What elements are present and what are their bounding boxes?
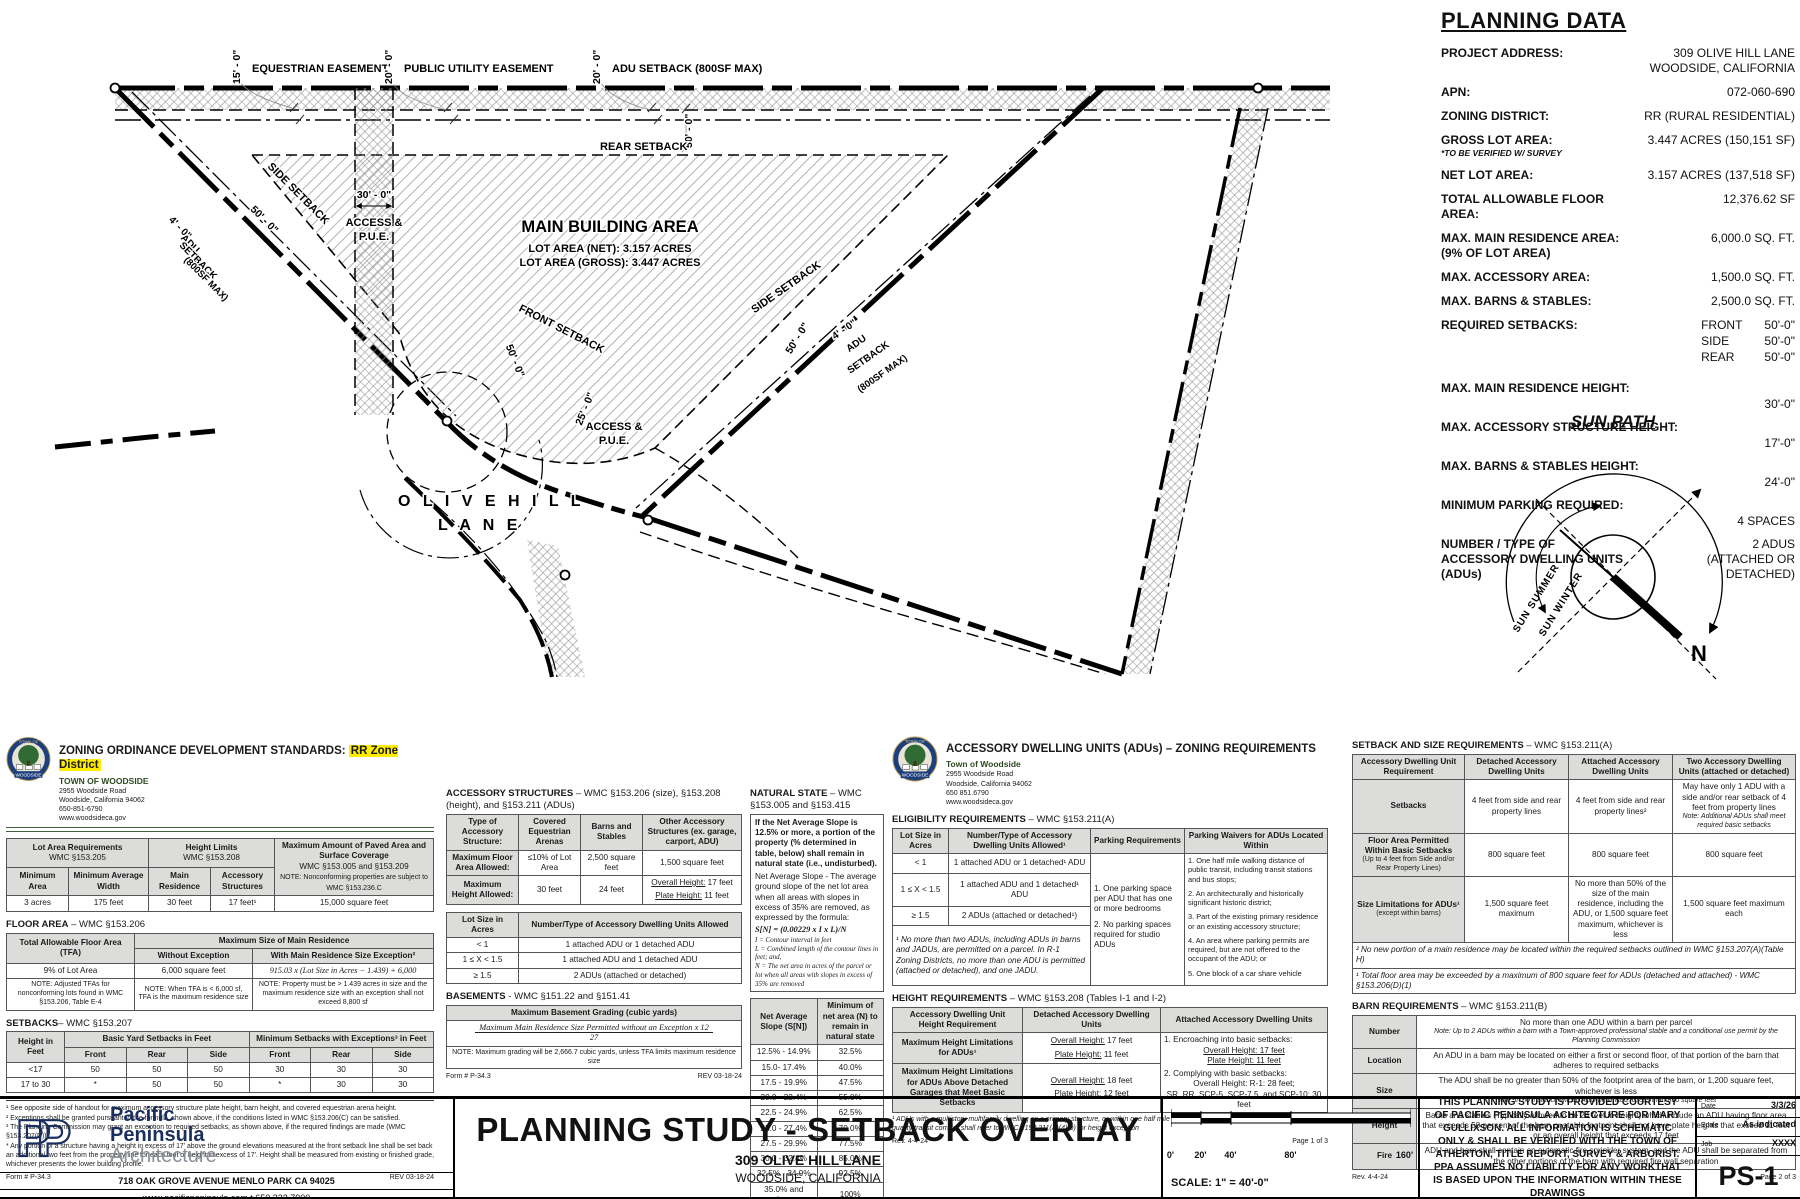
seal-top-text: TOWN OF (19, 740, 39, 745)
meta-job: Job XXXX (1697, 1137, 1800, 1156)
east-strip-west-edge (1122, 108, 1240, 674)
floor-area-heading: FLOOR AREA – WMC §153.206 (6, 919, 434, 931)
pp-monogram: PP (16, 1110, 70, 1164)
equestrian-easement-band (115, 88, 1330, 110)
east-access-strip (1122, 108, 1268, 674)
pd-row-setbacks: REQUIRED SETBACKS: FRONT50'-0" SIDE50'-0… (1441, 318, 1795, 365)
barn-requirements-heading: BARN REQUIREMENTS – WMC §153.211(B) (1352, 1001, 1796, 1013)
survey-note: *TO BE VERIFIED W/ SURVEY (1441, 148, 1562, 159)
seal-bottom-text: WOODSIDE (15, 772, 41, 777)
pd-row-gross-lot: GROSS LOT AREA: *TO BE VERIFIED W/ SURVE… (1441, 133, 1795, 159)
sun-path-title: SUN PATH (1448, 412, 1778, 432)
public-utility-easement-label: PUBLIC UTILITY EASEMENT (404, 63, 554, 75)
meta-date: Date 3/3/26 (1697, 1099, 1800, 1118)
north-label: N (1691, 641, 1707, 666)
panel3-title: ACCESSORY DWELLING UNITS (ADUs) – ZONING… (946, 742, 1316, 756)
adu-requirements-panel: TOWN OF WOODSIDE ACCESSORY DWELLING UNIT… (892, 736, 1328, 1146)
accessory-structures-table: Type of Accessory Structure: Covered Equ… (446, 814, 742, 905)
dim-20-pue-label: 20' - 0" (383, 50, 395, 84)
sheet-meta-box: Date 3/3/26 Scale As indicated Job XXXX … (1697, 1099, 1800, 1197)
corner-marker-nw (111, 84, 120, 93)
seal2-bottom-text: WOODSIDE (902, 773, 929, 779)
seal2-top-text: TOWN OF (905, 739, 926, 744)
disclaimer-box: THIS PLANNING STUDY IS PROVIDED COURTESY… (1420, 1099, 1697, 1197)
equestrian-easement-label: EQUESTRIAN EASEMENT (252, 63, 389, 75)
road-name-line1: O L I V E H I L L (398, 493, 585, 510)
scale-tick-labels: 0' 20' 40' 80' 160' (1171, 1150, 1411, 1162)
southeast-frontage (648, 518, 1122, 674)
planning-study-sheet: 15' - 0" EQUESTRIAN EASEMENT 20' - 0" PU… (0, 0, 1800, 1199)
height-requirements-heading: HEIGHT REQUIREMENTS – WMC §153.208 (Tabl… (892, 993, 1328, 1005)
firm-address: 718 OAK GROVE AVENUE MENLO PARK CA 94025 (0, 1172, 453, 1189)
access-dim-30-label: 30' - 0" (357, 189, 391, 201)
pd-row-net-lot: NET LOT AREA: 3.157 ACRES (137,518 SF) (1441, 168, 1795, 183)
sun-path-graphic: N SUN SUMMER SUN WINTER (1448, 432, 1778, 702)
rear-setback-label: REAR SETBACK (600, 141, 687, 153)
access-pue-label-1: ACCESS & (346, 217, 403, 229)
adu-setback-top-label: ADU SETBACK (800SF MAX) (612, 63, 763, 75)
access-strip-lower (527, 540, 585, 677)
north-pointer-thin (1560, 530, 1613, 577)
access2-label-2: P.U.E. (599, 435, 629, 447)
floor-area-table: Total Allowable Floor Area (TFA) Maximum… (6, 933, 434, 1011)
natural-state-intro: If the Net Average Slope is 12.5% or mor… (750, 814, 884, 993)
town2-phone: 650 851.6790 (946, 789, 1316, 798)
adu-lot-size-table: Lot Size in AcresNumber/Type of Accessor… (446, 912, 742, 984)
required-setbacks-values: FRONT50'-0" SIDE50'-0" REAR50'-0" (1701, 318, 1795, 365)
sun-path-diagram: SUN PATH N SUN SUMMER SUN WINTER (1448, 412, 1778, 707)
sheet-subtitle-address: 309 OLIVE HILL LANE (735, 1152, 881, 1168)
firm-name: Pacific Peninsula Architecture (110, 1105, 217, 1166)
pd-row-accessory: MAX. ACCESSORY AREA: 1,500.0 SQ. FT. (1441, 270, 1795, 285)
setbacks-table: Height in Feet Basic Yard Setbacks in Fe… (6, 1031, 434, 1093)
natural-state-heading: NATURAL STATE – WMC §153.005 and §153.41… (750, 788, 884, 812)
access-pue-label-2: P.U.E. (359, 231, 389, 243)
pd-row-barns: MAX. BARNS & STABLES: 2,500.0 SQ. FT. (1441, 294, 1795, 309)
scale-label: SCALE: 1" = 40'-0" (1171, 1177, 1410, 1193)
town2-addr1: 2955 Woodside Road (946, 770, 1316, 779)
corner-marker-culdesac (443, 417, 452, 426)
sun-summer-arc (1506, 474, 1722, 632)
planning-data-title: PLANNING DATA (1441, 8, 1795, 34)
green-divider (6, 827, 434, 832)
town-of-woodside-seal-2: TOWN OF WOODSIDE (892, 736, 938, 782)
pd-row-apn: APN: 072-060-690 (1441, 85, 1795, 100)
firm-contact: www.pacificpeninsula.com t 650.323.7900 (0, 1189, 453, 1199)
adu-right-word1: ADU (845, 333, 869, 354)
pd-row-zoning: ZONING DISTRICT: RR (RURAL RESIDENTIAL) (1441, 109, 1795, 124)
town-of-woodside-seal: TOWN OF WOODSIDE (6, 736, 51, 782)
panel1-title: ZONING ORDINANCE DEVELOPMENT STANDARDS: … (59, 744, 434, 773)
main-building-area-gross: LOT AREA (GROSS): 3.447 ACRES (520, 257, 701, 269)
corner-marker-road (561, 571, 570, 580)
graphic-scale-box: 0' 20' 40' 80' 160' SCALE: 1" = 40'-0" (1163, 1099, 1420, 1197)
corner-marker-frontage (644, 516, 653, 525)
meta-scale: Scale As indicated (1697, 1118, 1800, 1137)
dim-20-adu-label: 20' - 0" (591, 50, 603, 84)
setbacks-heading: SETBACKS– WMC §153.207 (6, 1018, 434, 1030)
pd-row-main-height: MAX. MAIN RESIDENCE HEIGHT: 30'-0" (1441, 381, 1795, 411)
panel2-footer: Form # P-34.3 REV 03-18-24 (446, 1073, 742, 1082)
access2-label-1: ACCESS & (586, 421, 643, 433)
road-name-line2: L A N E (438, 517, 521, 534)
basements-table: Maximum Basement Grading (cubic yards) M… (446, 1005, 742, 1070)
town-web: www.woodsideca.gov (59, 814, 434, 823)
dim-50-side-right-label: 50' - 0" (783, 321, 811, 356)
main-building-area-title: MAIN BUILDING AREA (521, 218, 698, 236)
graphic-scale-bar (1171, 1109, 1411, 1135)
eligibility-heading: ELIGIBILITY REQUIREMENTS – WMC §153.211(… (892, 814, 1328, 826)
accessory-structures-heading: ACCESSORY STRUCTURES – WMC §153.206 (siz… (446, 788, 742, 812)
pd-row-tfa: TOTAL ALLOWABLE FLOOR AREA: 12,376.62 SF (1441, 192, 1795, 222)
front-setback-extension (655, 448, 800, 560)
west-road-stub (55, 431, 215, 447)
pd-row-project-address: PROJECT ADDRESS: 309 OLIVE HILL LANE WOO… (1441, 46, 1795, 76)
town2-addr2: Woodside, California 94062 (946, 780, 1316, 789)
sheet-title-box: PLANNING STUDY - SETBACK OVERLAY 309 OLI… (455, 1099, 1163, 1197)
pd-row-main-residence: MAX. MAIN RESIDENCE AREA: (9% OF LOT ARE… (1441, 231, 1795, 261)
dim-50-side-left-label: 50' - 0" (248, 203, 281, 236)
basements-heading: BASEMENTS - WMC §151.22 and §151.41 (446, 991, 742, 1003)
north-pointer-heavy (1613, 577, 1680, 637)
southeast-setback-dashed (640, 532, 1105, 674)
site-plan-drawing: 15' - 0" EQUESTRIAN EASEMENT 20' - 0" PU… (0, 0, 1380, 710)
town-addr2: Woodside, California 94062 (59, 796, 434, 805)
town-name: TOWN OF WOODSIDE (59, 776, 434, 787)
town-phone: 650-851-6790 (59, 805, 434, 814)
sheet-subtitle-city: WOODSIDE, CALIFORNIA (735, 1171, 880, 1185)
setback-size-table: Accessory Dwelling Unit Requirement Deta… (1352, 754, 1796, 994)
corner-marker-ne (1254, 84, 1263, 93)
town2-web: www.woodsideca.gov (946, 798, 1316, 807)
eligibility-table: Lot Size in Acres Number/Type of Accesso… (892, 828, 1328, 986)
setback-size-heading: SETBACK AND SIZE REQUIREMENTS – WMC §153… (1352, 740, 1796, 752)
firm-box: PP Pacific Peninsula Architecture 718 OA… (0, 1099, 455, 1197)
access-pue-strip (355, 88, 393, 415)
town-addr1: 2955 Woodside Road (59, 787, 434, 796)
title-block: PP Pacific Peninsula Architecture 718 OA… (0, 1096, 1800, 1199)
town2-name: Town of Woodside (946, 759, 1316, 770)
pacific-peninsula-logo: PP (14, 1108, 100, 1164)
sheet-title: PLANNING STUDY - SETBACK OVERLAY (476, 1111, 1139, 1149)
sheet-number: PS-1 (1697, 1156, 1800, 1197)
dim-15-label: 15' - 0" (231, 50, 243, 84)
lot-area-height-table: Lot Area RequirementsWMC §153.205 Height… (6, 838, 434, 912)
main-building-area-net: LOT AREA (NET): 3.157 ACRES (528, 243, 691, 255)
